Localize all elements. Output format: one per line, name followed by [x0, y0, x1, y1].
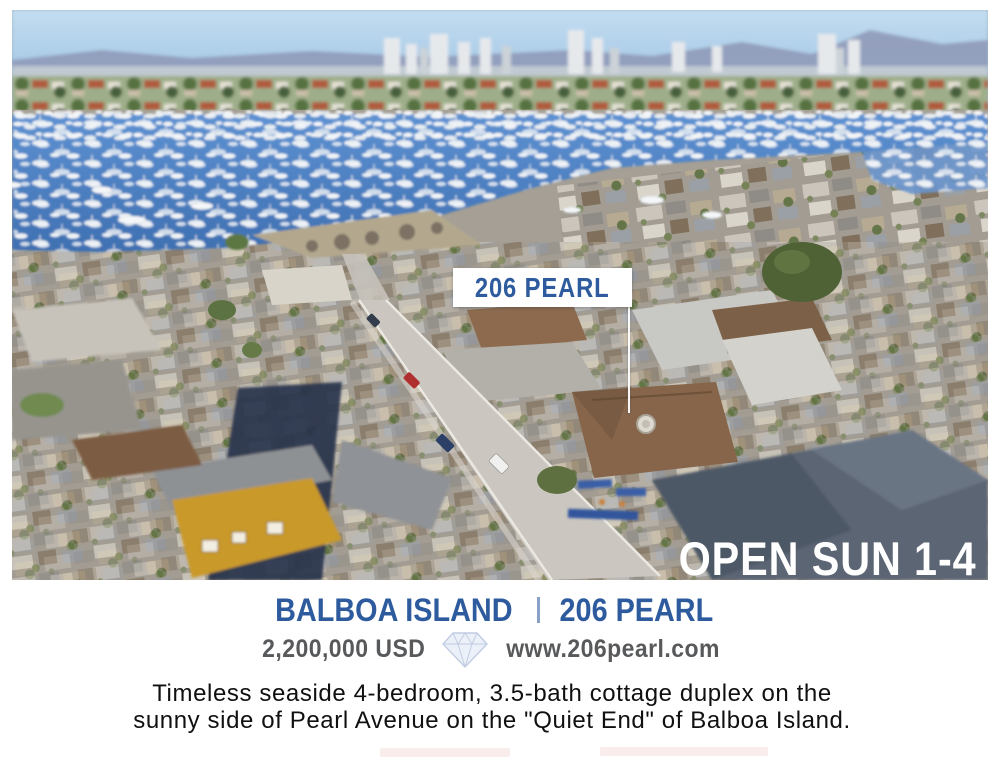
- marker-leader-line: [628, 307, 630, 413]
- listing-website: www.206pearl.com: [506, 635, 720, 664]
- aerial-photo: 206 PEARL OPEN SUN 1-4: [12, 10, 988, 580]
- listing-title: BALBOA ISLAND 206 PEARL: [0, 592, 984, 628]
- listing-price: 2,200,000 USD: [262, 635, 425, 664]
- cropped-footer-artifact: [600, 747, 768, 756]
- property-marker-label: 206 PEARL: [453, 268, 632, 307]
- description-line-1: Timeless seaside 4-bedroom, 3.5-bath cot…: [0, 680, 984, 707]
- listing-address: 206 PEARL: [560, 592, 714, 629]
- price-row: 2,200,000 USD www.206pearl.com: [0, 633, 984, 665]
- large-tree: [762, 242, 842, 302]
- listing-description: Timeless seaside 4-bedroom, 3.5-bath cot…: [0, 680, 984, 734]
- gem-logo-icon: [441, 629, 489, 669]
- description-line-2: sunny side of Pearl Avenue on the "Quiet…: [0, 707, 984, 734]
- real-estate-flyer: 206 PEARL OPEN SUN 1-4 BALBOA ISLAND 206…: [0, 0, 998, 760]
- listing-location: BALBOA ISLAND: [275, 592, 512, 629]
- sky-region: [12, 10, 988, 122]
- marker-label-text: 206 PEARL: [475, 272, 610, 304]
- cropped-footer-artifact: [380, 748, 510, 757]
- caption-block: BALBOA ISLAND 206 PEARL 2,200,000 USD ww…: [0, 592, 984, 734]
- title-separator-bar: [537, 597, 540, 623]
- open-house-banner: OPEN SUN 1-4: [678, 531, 976, 580]
